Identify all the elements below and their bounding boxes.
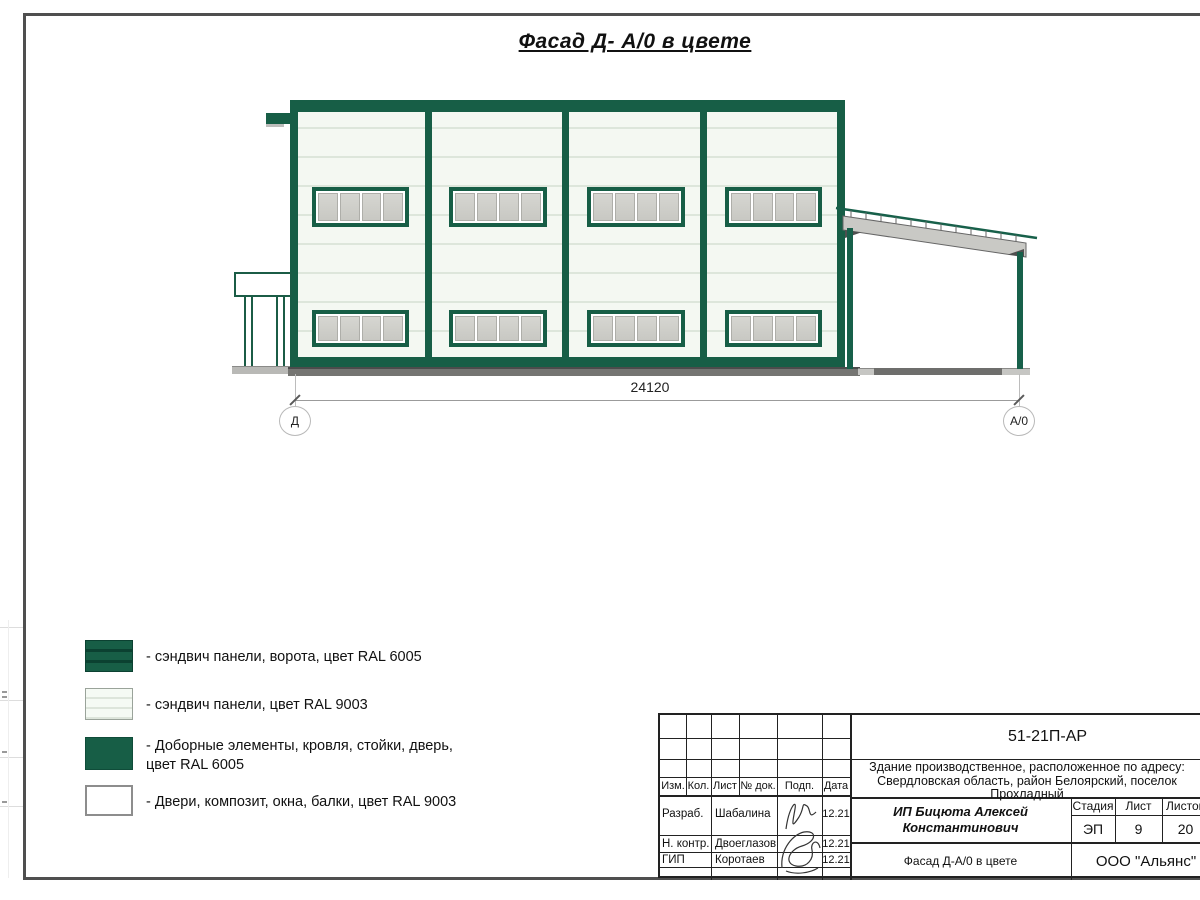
legend-swatch-gates-ral6005 — [85, 640, 133, 672]
window — [725, 187, 822, 227]
signer-role: Разраб. — [662, 805, 710, 823]
project-address: Здание производственное, расположенное п… — [852, 761, 1200, 802]
title-block: Изм. Кол. Лист № док. Подп. Дата Разраб.… — [658, 713, 1200, 878]
sheet-label: Лист — [1115, 797, 1162, 815]
window-pane — [753, 316, 773, 341]
margin-line — [0, 627, 23, 628]
sheet-title: Фасад Д-А/0 в цвете — [850, 842, 1071, 880]
client-line: Константинович — [850, 820, 1071, 836]
window-pane — [362, 316, 382, 341]
window — [449, 310, 547, 347]
window-pane — [477, 193, 497, 221]
window-pane — [499, 316, 519, 341]
address-line: Свердловская область, район Белоярский, … — [852, 775, 1200, 789]
margin-line — [0, 700, 23, 701]
doc-number: 51-21П-АР — [850, 721, 1200, 753]
signer-role: Н. контр. — [662, 835, 712, 852]
margin-tick — [2, 751, 7, 753]
sheets-label: Листов — [1162, 797, 1200, 815]
dimension-value: 24120 — [595, 379, 705, 395]
window-pane — [362, 193, 382, 221]
company-name: ООО "Альянс" — [1071, 842, 1200, 880]
window-pane — [659, 193, 679, 221]
axis-bubble-right: А/0 — [1003, 406, 1035, 436]
window — [725, 310, 822, 347]
leanto-post — [847, 228, 853, 369]
signer-name: Шабалина — [715, 805, 777, 823]
gutter-shadow — [266, 124, 284, 127]
window-pane — [383, 193, 403, 221]
legend-label: - Доборные элементы, кровля, стойки, две… — [146, 737, 478, 775]
gutter-stub — [266, 113, 292, 124]
sheets-value: 20 — [1162, 815, 1200, 842]
signer-date: 12.21 — [822, 805, 850, 823]
entrance-canopy-post — [244, 297, 253, 368]
window-pane — [731, 193, 751, 221]
window-pane — [615, 316, 635, 341]
col-header-ndok: № док. — [739, 777, 777, 795]
window-pane — [637, 316, 657, 341]
signer-name: Коротаев — [715, 852, 777, 867]
facade-left-corner-post — [290, 100, 298, 368]
margin-line — [8, 620, 9, 878]
window — [449, 187, 547, 227]
view-title: Фасад Д- А/0 в цвете — [395, 30, 875, 54]
title-block-line — [660, 738, 850, 739]
legend-swatch-trim-ral6005 — [85, 737, 133, 770]
window-pane — [753, 193, 773, 221]
margin-tick — [2, 691, 7, 693]
window-pane — [383, 316, 403, 341]
col-header-izm: Изм. — [660, 777, 686, 795]
window-pane — [731, 316, 751, 341]
stage-value: ЭП — [1071, 815, 1115, 842]
legend-swatch-panels-ral9003 — [85, 688, 133, 720]
window-pane — [659, 316, 679, 341]
window — [587, 187, 685, 227]
legend-label: - Двери, композит, окна, балки, цвет RAL… — [146, 793, 478, 812]
window-pane — [796, 316, 816, 341]
window-pane — [340, 316, 360, 341]
window-pane — [521, 316, 541, 341]
window-pane — [775, 316, 795, 341]
facade-mullion — [700, 106, 707, 361]
legend-label: - сэндвич панели, цвет RAL 9003 — [146, 696, 478, 715]
ground-slab-left — [232, 366, 290, 374]
entrance-canopy-beam — [234, 272, 292, 297]
drawing-sheet: Фасад Д- А/0 в цвете — [0, 0, 1200, 900]
window-pane — [775, 193, 795, 221]
window-pane — [318, 316, 338, 341]
sheet-value: 9 — [1115, 815, 1162, 842]
window-pane — [340, 193, 360, 221]
window-pane — [318, 193, 338, 221]
stage-label: Стадия — [1071, 797, 1115, 815]
facade-mullion — [425, 106, 432, 361]
window-pane — [637, 193, 657, 221]
window-pane — [499, 193, 519, 221]
window-pane — [593, 316, 613, 341]
margin-line — [0, 757, 23, 758]
window — [587, 310, 685, 347]
signer-name: Двоеглазов — [715, 835, 777, 852]
signer-role: ГИП — [662, 852, 712, 867]
col-header-list: Лист — [711, 777, 739, 795]
leanto-post — [1017, 252, 1023, 369]
legend-label: - сэндвич панели, ворота, цвет RAL 6005 — [146, 648, 478, 667]
margin-line — [0, 806, 23, 807]
legend-swatch-doors-ral9003 — [85, 785, 133, 816]
signer-date: 12.21 — [822, 852, 850, 867]
facade-mullion — [562, 106, 569, 361]
dimension-line — [295, 400, 1019, 401]
window-pane — [455, 316, 475, 341]
address-line: Здание производственное, расположенное п… — [852, 761, 1200, 775]
entrance-canopy-post — [276, 297, 285, 368]
window-pane — [521, 193, 541, 221]
window — [312, 310, 409, 347]
window-pane — [455, 193, 475, 221]
leanto-canopy — [828, 188, 1043, 380]
axis-bubble-left: Д — [279, 406, 311, 436]
col-header-kol: Кол. — [686, 777, 711, 795]
signature-scribble — [776, 824, 824, 876]
margin-tick — [2, 801, 7, 803]
axis-right-label: А/0 — [1010, 414, 1028, 428]
col-header-data: Дата — [822, 777, 850, 795]
client-line: ИП Бицюта Алексей — [850, 804, 1071, 820]
axis-left-label: Д — [291, 414, 299, 428]
signer-date: 12.21 — [822, 835, 850, 852]
col-header-podp: Подп. — [777, 777, 822, 795]
client-name: ИП Бицюта Алексей Константинович — [850, 804, 1071, 836]
window-pane — [477, 316, 497, 341]
margin-tick — [2, 696, 7, 698]
window-pane — [593, 193, 613, 221]
window — [312, 187, 409, 227]
window-pane — [796, 193, 816, 221]
window-pane — [615, 193, 635, 221]
ground-slab-main — [288, 367, 860, 376]
